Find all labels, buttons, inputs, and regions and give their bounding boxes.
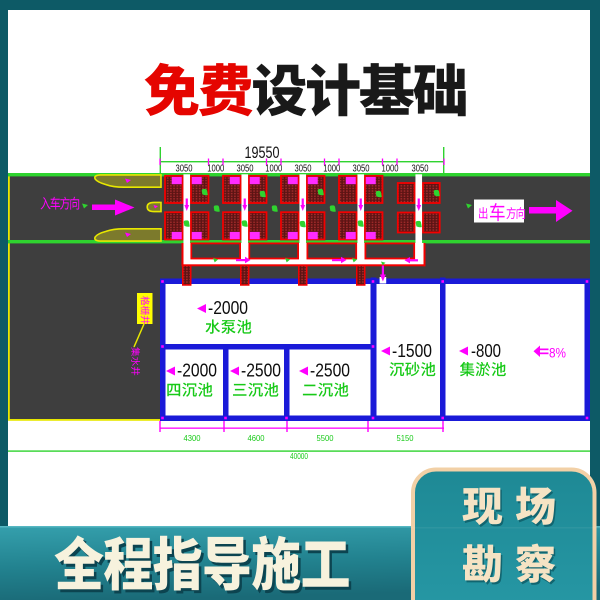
svg-text:1000: 1000 xyxy=(207,164,224,175)
svg-text:3050: 3050 xyxy=(295,164,312,175)
svg-text:1000: 1000 xyxy=(382,164,399,175)
svg-text:1000: 1000 xyxy=(323,164,340,175)
svg-text:40000: 40000 xyxy=(290,452,308,461)
svg-text:-2500: -2500 xyxy=(241,361,281,381)
svg-text:5500: 5500 xyxy=(317,433,334,443)
svg-text:1000: 1000 xyxy=(265,164,282,175)
svg-text:-2000: -2000 xyxy=(177,361,217,381)
svg-text:3050: 3050 xyxy=(237,164,254,175)
svg-text:5150: 5150 xyxy=(397,433,414,443)
svg-text:4300: 4300 xyxy=(184,433,201,443)
svg-text:-2500: -2500 xyxy=(310,361,350,381)
svg-text:4600: 4600 xyxy=(248,433,265,443)
svg-text:-2000: -2000 xyxy=(208,298,248,318)
svg-text:3050: 3050 xyxy=(412,164,429,175)
svg-text:3050: 3050 xyxy=(353,164,370,175)
svg-text:-800: -800 xyxy=(471,341,501,361)
svg-text:19550: 19550 xyxy=(245,143,280,162)
svg-text:3050: 3050 xyxy=(176,164,193,175)
svg-text:-1500: -1500 xyxy=(392,341,432,361)
svg-text:8%: 8% xyxy=(549,345,566,361)
